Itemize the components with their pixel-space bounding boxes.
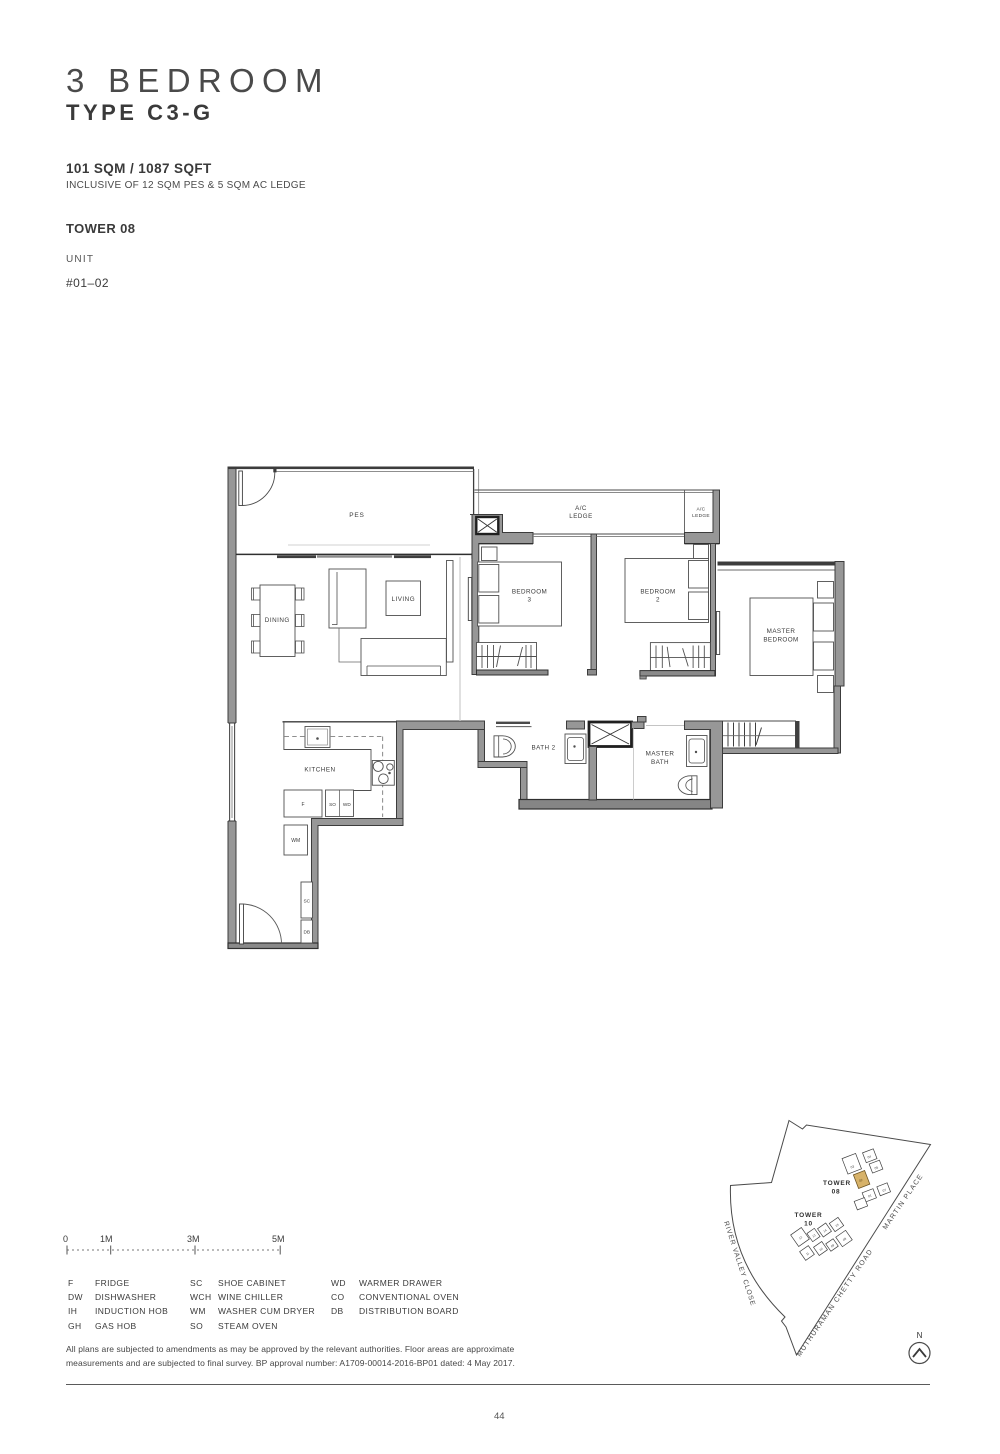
svg-text:MARTIN PLACE: MARTIN PLACE	[882, 1173, 925, 1231]
svg-text:F: F	[301, 802, 304, 808]
svg-text:LIVING: LIVING	[391, 596, 415, 603]
svg-text:BEDROOM: BEDROOM	[640, 589, 675, 596]
svg-text:BEDROOM: BEDROOM	[763, 637, 798, 644]
svg-text:MASTER: MASTER	[646, 751, 675, 758]
svg-text:DINING: DINING	[265, 617, 290, 624]
svg-text:LEDGE: LEDGE	[569, 513, 592, 520]
svg-text:PES: PES	[349, 512, 364, 519]
svg-text:RIVER VALLEY CLOSE: RIVER VALLEY CLOSE	[722, 1220, 756, 1307]
svg-text:TOWER: TOWER	[794, 1212, 822, 1219]
svg-text:3: 3	[528, 597, 532, 604]
svg-text:MUTHURAMAN CHETTY ROAD: MUTHURAMAN CHETTY ROAD	[796, 1248, 875, 1358]
svg-text:BATH 2: BATH 2	[532, 745, 556, 752]
svg-text:10: 10	[804, 1221, 813, 1228]
svg-text:BATH: BATH	[651, 759, 669, 766]
svg-text:N: N	[917, 1331, 923, 1340]
svg-text:2: 2	[656, 597, 660, 604]
svg-text:KITCHEN: KITCHEN	[304, 767, 335, 774]
svg-text:TOWER: TOWER	[823, 1180, 851, 1187]
svg-text:A/C: A/C	[575, 505, 587, 512]
svg-text:08: 08	[832, 1189, 841, 1196]
svg-text:WD: WD	[343, 802, 351, 807]
svg-text:DB: DB	[303, 930, 310, 936]
svg-text:WM: WM	[291, 838, 300, 844]
svg-text:SC: SC	[303, 899, 310, 905]
svg-text:SO: SO	[329, 802, 336, 807]
svg-text:BEDROOM: BEDROOM	[512, 589, 547, 596]
svg-text:A/C: A/C	[697, 507, 706, 513]
svg-text:MASTER: MASTER	[767, 628, 796, 635]
svg-text:LEDGE: LEDGE	[692, 513, 710, 519]
